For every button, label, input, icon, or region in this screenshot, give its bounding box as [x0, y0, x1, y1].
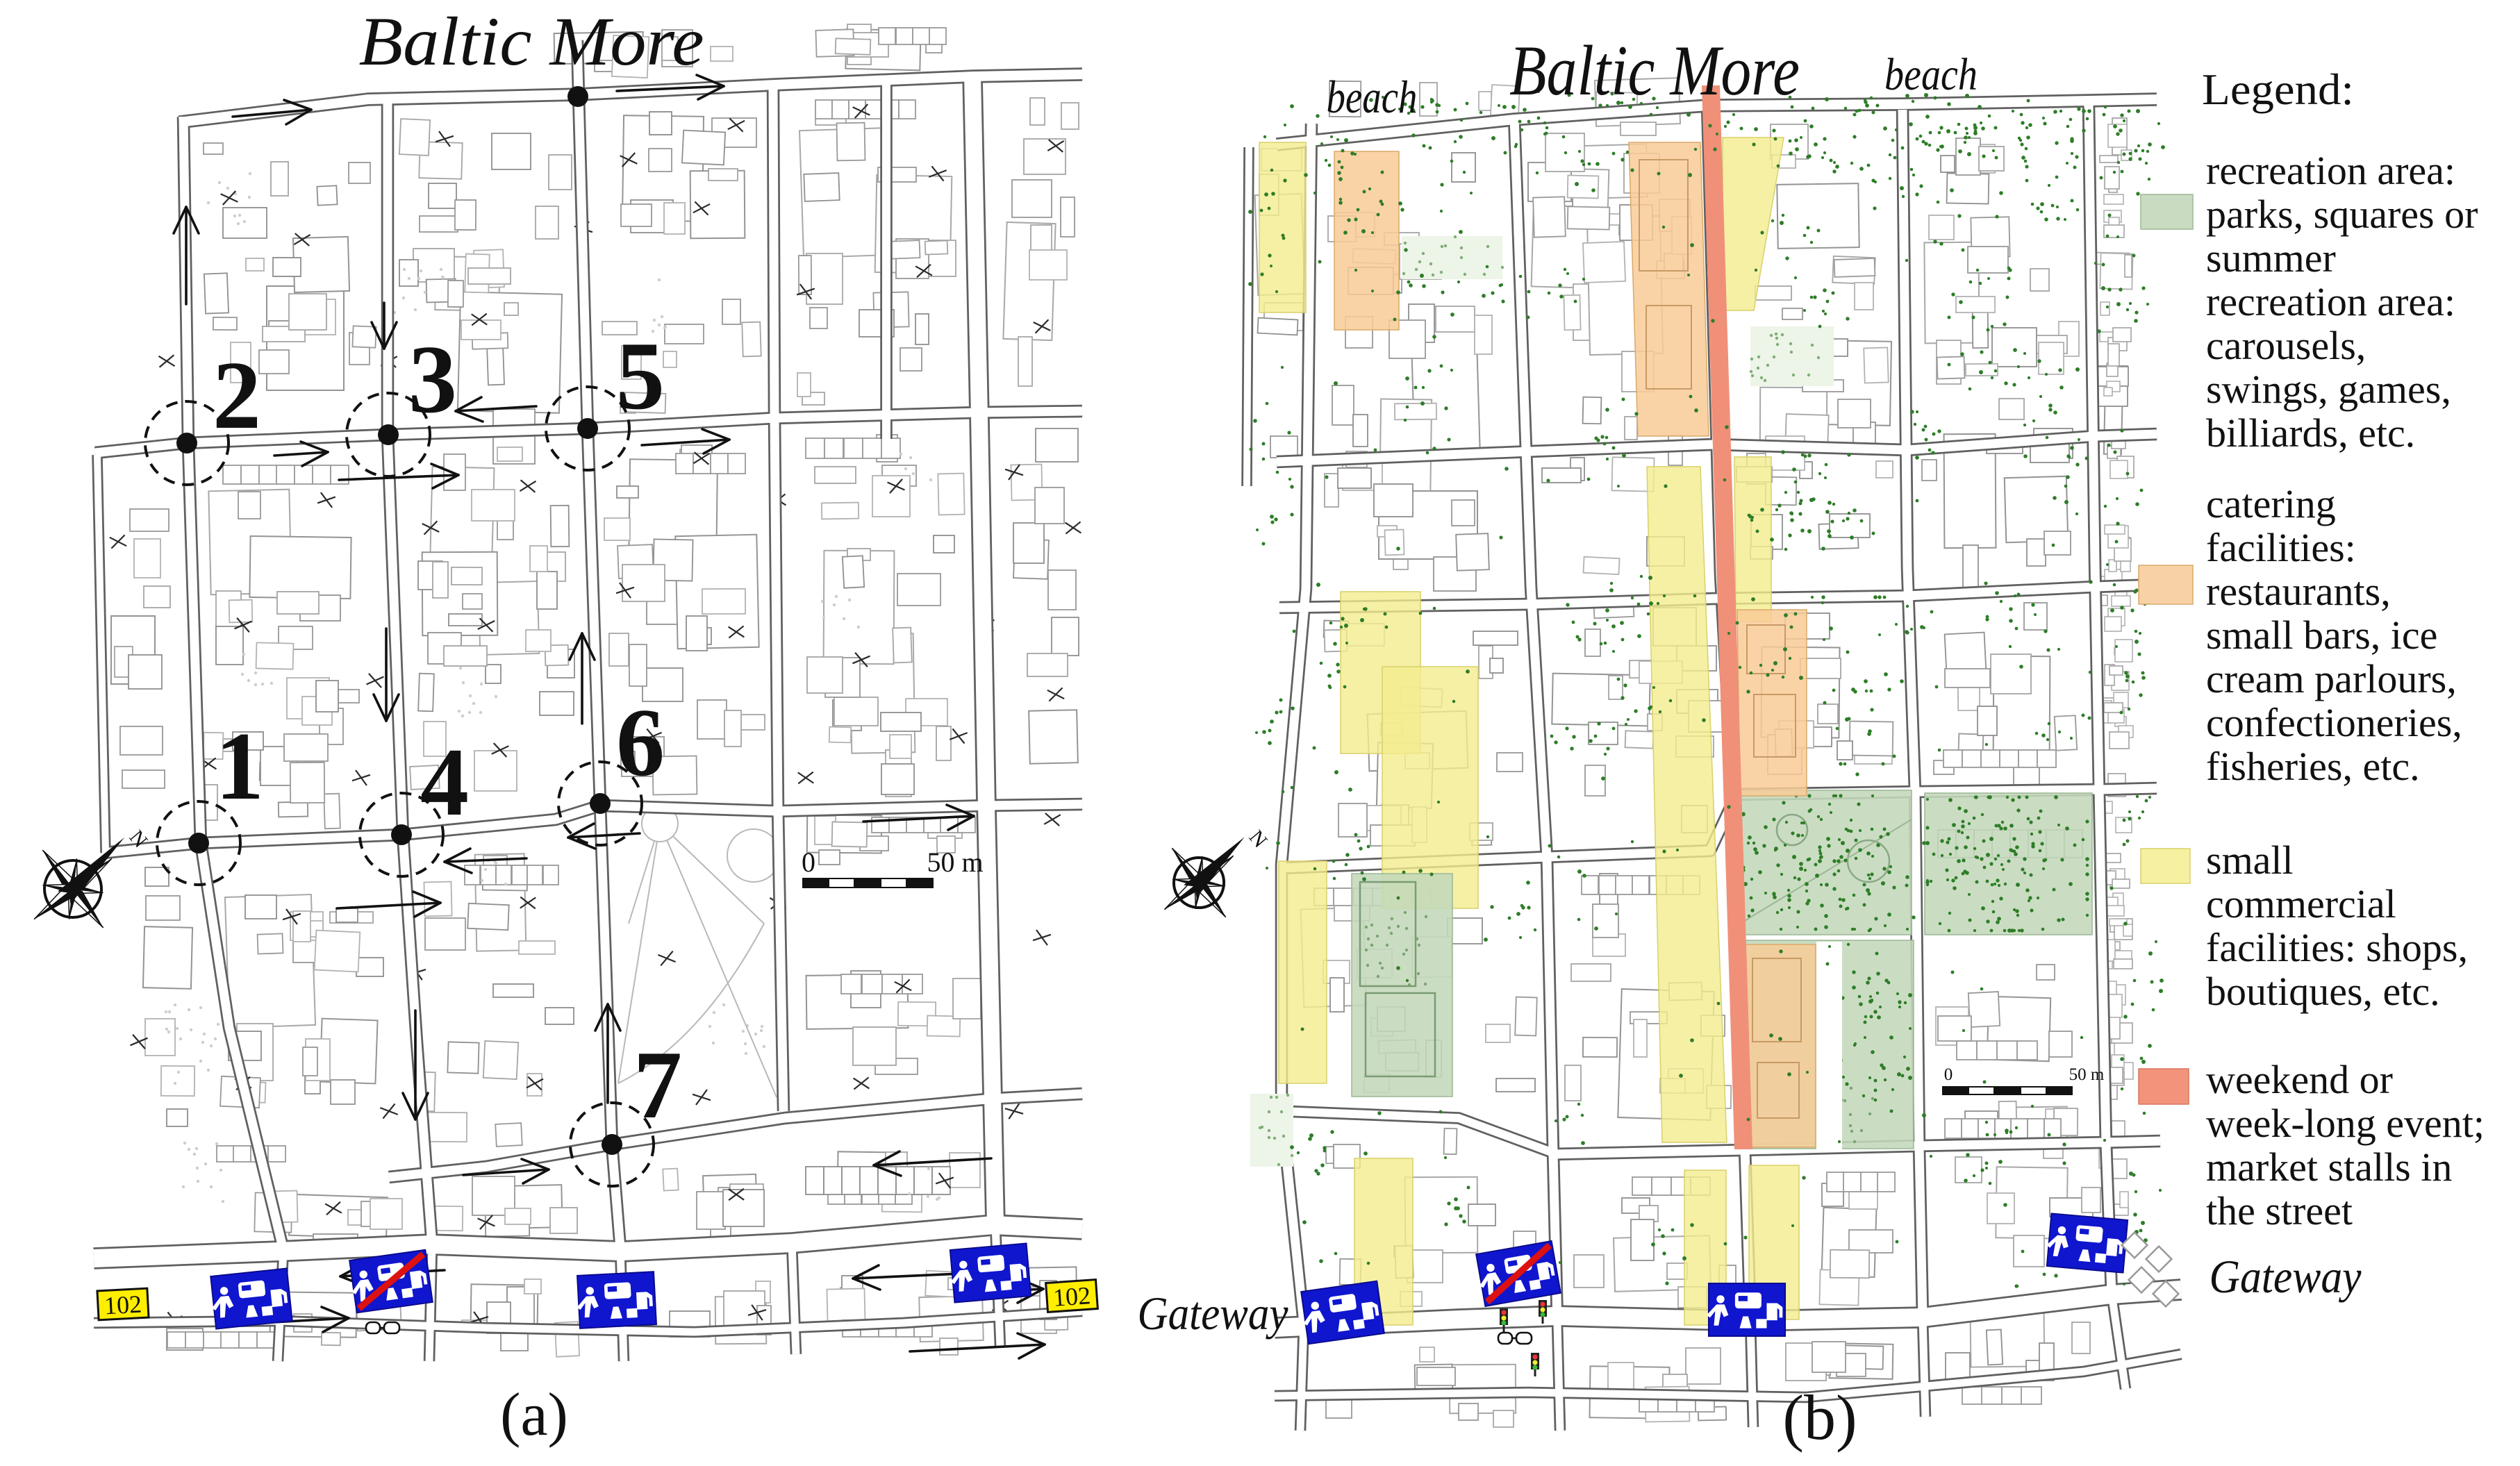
svg-text:small: small — [2206, 838, 2294, 883]
svg-text:0: 0 — [1944, 1065, 1953, 1084]
svg-text:5: 5 — [616, 322, 665, 430]
svg-text:50 m: 50 m — [927, 847, 983, 878]
svg-text:carousels,: carousels, — [2206, 323, 2366, 368]
svg-text:4: 4 — [420, 728, 469, 836]
svg-text:3: 3 — [408, 326, 457, 433]
svg-text:the street: the street — [2206, 1188, 2353, 1233]
svg-text:0: 0 — [802, 847, 815, 878]
svg-text:summer: summer — [2206, 235, 2336, 281]
svg-text:Baltic More: Baltic More — [359, 3, 704, 80]
svg-text:small bars, ice: small bars, ice — [2206, 613, 2437, 658]
svg-text:recreation area:: recreation area: — [2206, 148, 2455, 193]
svg-text:50 m: 50 m — [2069, 1065, 2105, 1084]
svg-text:fisheries, etc.: fisheries, etc. — [2206, 744, 2420, 789]
svg-text:facilities: shops,: facilities: shops, — [2206, 925, 2468, 970]
svg-text:beach: beach — [1884, 49, 1978, 100]
svg-text:catering: catering — [2206, 481, 2336, 526]
svg-text:7: 7 — [633, 1031, 682, 1139]
svg-text:facilities:: facilities: — [2206, 525, 2356, 570]
svg-text:(a): (a) — [500, 1381, 568, 1449]
svg-text:beach: beach — [1327, 72, 1418, 123]
svg-text:confectioneries,: confectioneries, — [2206, 700, 2462, 745]
svg-text:commercial: commercial — [2206, 881, 2396, 926]
svg-text:102: 102 — [103, 1290, 142, 1320]
svg-text:(b): (b) — [1782, 1382, 1857, 1453]
svg-text:2: 2 — [213, 342, 261, 449]
svg-text:swings, games,: swings, games, — [2206, 367, 2451, 412]
svg-text:Legend:: Legend: — [2202, 65, 2354, 114]
svg-text:market stalls in: market stalls in — [2206, 1144, 2452, 1190]
svg-text:1: 1 — [215, 713, 264, 820]
svg-text:Baltic More: Baltic More — [1509, 31, 1800, 110]
svg-text:cream parlours,: cream parlours, — [2206, 656, 2457, 701]
svg-text:restaurants,: restaurants, — [2206, 569, 2391, 614]
svg-text:boutiques, etc.: boutiques, etc. — [2206, 969, 2440, 1014]
svg-text:Gateway: Gateway — [2210, 1250, 2362, 1303]
svg-text:parks, squares or: parks, squares or — [2206, 192, 2478, 237]
svg-text:102: 102 — [1052, 1281, 1092, 1312]
svg-text:6: 6 — [616, 689, 665, 797]
svg-text:billiards, etc.: billiards, etc. — [2206, 410, 2415, 456]
svg-text:weekend or: weekend or — [2206, 1057, 2393, 1102]
svg-text:week-long event;: week-long event; — [2206, 1101, 2485, 1146]
svg-text:recreation area:: recreation area: — [2206, 279, 2455, 324]
svg-text:Gateway: Gateway — [1138, 1287, 1289, 1340]
